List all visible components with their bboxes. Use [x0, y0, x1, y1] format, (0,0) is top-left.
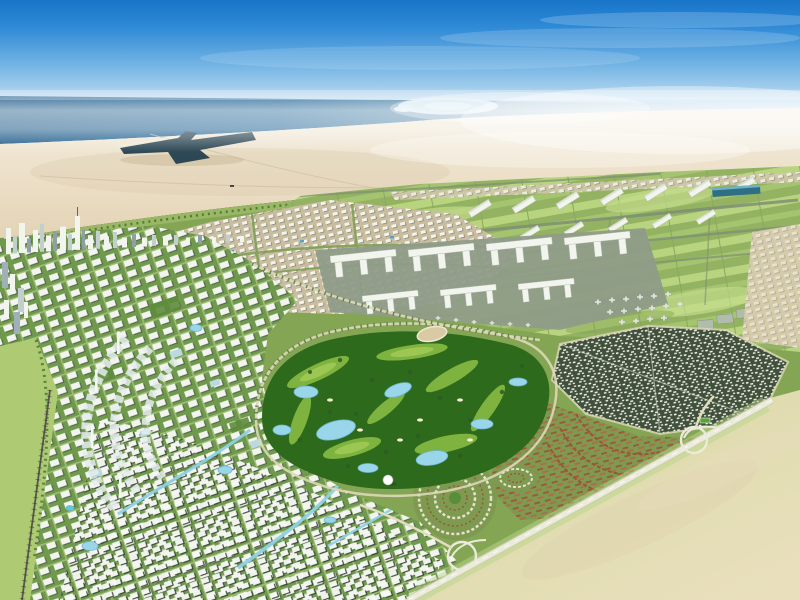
horizon-haze: [0, 86, 800, 154]
sports-field: [700, 418, 710, 423]
masterplan-aerial-image: [0, 0, 800, 600]
vehicle-dot: [230, 185, 234, 187]
oval-villa-cluster: [494, 464, 538, 492]
aerial-rendering-canvas: [0, 0, 800, 600]
